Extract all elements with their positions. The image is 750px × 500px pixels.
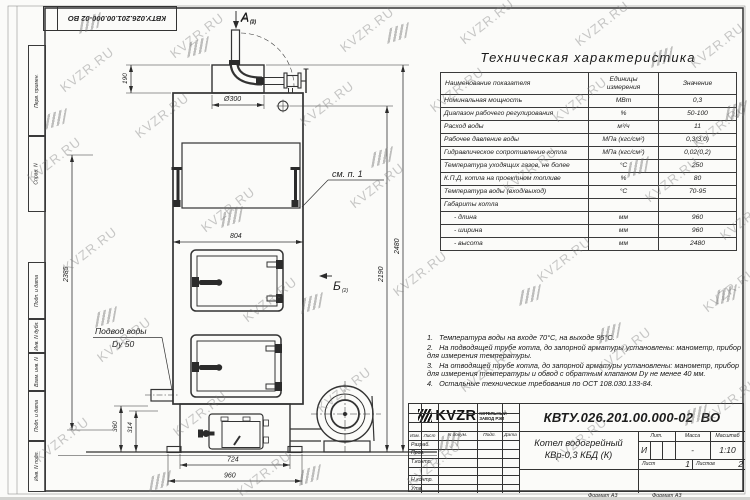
drawing-sheet: А (2) (0, 0, 750, 500)
spec-row: Диапазон рабочего регулирования%50-100 (441, 108, 737, 121)
spec-cell: 0,02(0,2) (659, 147, 737, 160)
frame-label-perv-primen: Перв. примен. (28, 45, 46, 137)
note-text: Температура воды на входе 70°С, на выход… (439, 333, 615, 342)
spec-row: Расход водым³/ч11 (441, 121, 737, 134)
note-text: На подводящей трубе котла, до запорной а… (427, 343, 741, 361)
spec-cell: Рабочее давление воды (441, 134, 589, 147)
product-name: Котел водогрейный КВр-0,3 КБД (К) (519, 431, 638, 469)
spec-cell: % (589, 108, 659, 121)
spec-cell: мм (589, 212, 659, 225)
spec-row: - высотамм2480 (441, 238, 737, 251)
spec-row: - ширинамм960 (441, 225, 737, 238)
spec-row: Температура воды (вход/выход)°С70-95 (441, 186, 737, 199)
top-stamp: КВТУ.026.201.00.000-02 ВО (43, 6, 177, 31)
note-text: Остальные технические требования по ОСТ … (439, 379, 653, 388)
spec-row: Габариты котла (441, 199, 737, 212)
row-razrab: Разраб. (411, 440, 439, 449)
technical-notes: 1.Температура воды на входе 70°С, на вых… (427, 334, 741, 389)
spec-col-name: Наименование показателя (441, 73, 589, 95)
col-podp: Подп. (477, 431, 502, 440)
spec-row: К.П.Д. котла на проектном топливе%80 (441, 173, 737, 186)
view-a-sub: (2) (250, 20, 256, 26)
title-block: КВТУ.026.201.00.000-02 ВО Изм. Лист N до… (408, 403, 744, 492)
frame-label-text: Инв. N подл. (34, 451, 40, 481)
spec-row: Гидравлическое сопротивление котлаМПа (к… (441, 147, 737, 160)
kvzr-logo: KVZR КОТЕЛЬНЫЙ ЗАВОД РЭП (409, 404, 516, 428)
stamp-number: КВТУ.026.201.00.000-02 ВО (68, 14, 166, 23)
spec-cell (659, 199, 737, 212)
col-data: Дата (502, 431, 519, 440)
view-a-letter: А (240, 11, 249, 25)
spec-cell: 960 (659, 225, 737, 238)
row-nkontr: Н.контр. (411, 475, 439, 484)
frame-label-podp-data-2: Подп. и дата (28, 390, 46, 442)
spec-cell: м³/ч (589, 121, 659, 134)
stamp-divider (44, 7, 58, 30)
spec-cell: 70-95 (659, 186, 737, 199)
spec-cell: мм (589, 238, 659, 251)
col-list: Лист (421, 431, 438, 440)
frame-label-text: Подп. и дата (34, 400, 40, 432)
spec-cell: Температура уходящих газов, не более (441, 160, 589, 173)
spec-row: - длинамм960 (441, 212, 737, 225)
product-name-line1: Котел водогрейный (534, 438, 622, 450)
spec-cell: - ширина (441, 225, 589, 238)
sheets-cell: Листов 2 (696, 459, 747, 469)
row-tkontr: Т.контр. (411, 458, 439, 467)
col-izm: Изм. (409, 431, 421, 440)
spec-title: Техническая характеристика (440, 50, 736, 65)
lit-header: Лит. (638, 431, 675, 441)
frame-label-podp-data-1: Подп. и дата (28, 262, 46, 320)
technical-note: 4.Остальные технические требования по ОС… (427, 380, 741, 389)
spec-cell: - длина (441, 212, 589, 225)
sheets-label: Листов (696, 461, 715, 467)
spec-cell: 11 (659, 121, 737, 134)
spec-cell: МВт (589, 95, 659, 108)
spec-cell: Температура воды (вход/выход) (441, 186, 589, 199)
spec-cell (589, 199, 659, 212)
technical-note: 3.На отводящей трубе котла, до запорной … (427, 362, 741, 379)
frame-label-inv-podl: Инв. N подл. (28, 440, 46, 492)
row-utv: Утв. (411, 484, 439, 493)
technical-note: 2.На подводящей трубе котла, до запорной… (427, 344, 741, 361)
spec-cell: Гидравлическое сопротивление котла (441, 147, 589, 160)
spec-cell: 50-100 (659, 108, 737, 121)
sheet-label: Лист (642, 461, 655, 467)
note-number: 1. (427, 333, 433, 342)
document-number: КВТУ.026.201.00.000-02 ВО (519, 404, 745, 431)
spec-cell: Габариты котла (441, 199, 589, 212)
note-text: На отводящей трубе котла, до запорной ар… (427, 361, 739, 379)
spec-cell: К.П.Д. котла на проектном топливе (441, 173, 589, 186)
spec-cell: Диапазон рабочего регулирования (441, 108, 589, 121)
spec-cell: Расход воды (441, 121, 589, 134)
note-number: 4. (427, 379, 433, 388)
spec-cell: МПа (кгс/см²) (589, 134, 659, 147)
spec-cell: % (589, 173, 659, 186)
frame-label-inv-dubl: Инв. N дубл. (28, 318, 46, 354)
lit-value: И (638, 441, 650, 459)
spec-cell: 0,3 (659, 95, 737, 108)
spec-cell: 2480 (659, 238, 737, 251)
spec-cell: 250 (659, 160, 737, 173)
spec-cell: 0,3(3,0) (659, 134, 737, 147)
spec-row: Температура уходящих газов, не более°С25… (441, 160, 737, 173)
spec-col-units: Единицы измерения (589, 73, 659, 95)
frame-label-vzam-inv: Взам. инв. N (28, 352, 46, 392)
spec-cell: МПа (кгс/см²) (589, 147, 659, 160)
technical-note: 1.Температура воды на входе 70°С, на вых… (427, 334, 741, 343)
spec-cell: °С (589, 160, 659, 173)
mass-header: Масса (675, 431, 710, 441)
spec-cell: 80 (659, 173, 737, 186)
spec-cell: мм (589, 225, 659, 238)
spec-table: Наименование показателя Единицы измерени… (440, 72, 737, 251)
sheet-cell: Лист 1 (642, 459, 696, 469)
frame-label-text: Инв. N дубл. (34, 321, 40, 351)
row-prov: Пров. (411, 449, 439, 458)
product-name-line2: КВр-0,3 КБД (К) (545, 450, 613, 462)
scale-value: 1:10 (710, 441, 745, 459)
mass-value: - (675, 441, 710, 459)
sheets-value: 2 (738, 459, 743, 469)
spec-cell: Номинальная мощность (441, 95, 589, 108)
scale-header: Масштаб (710, 431, 745, 441)
spec-section: Техническая характеристика Наименование … (440, 50, 736, 251)
spec-cell: - высота (441, 238, 589, 251)
frame-label-text: Подп. и дата (34, 275, 40, 307)
spec-row: Рабочее давление водыМПа (кгс/см²)0,3(3,… (441, 134, 737, 147)
spec-col-value: Значение (659, 73, 737, 95)
frame-label-text: Взам. инв. N (34, 357, 40, 387)
spec-header-row: Наименование показателя Единицы измерени… (441, 73, 737, 95)
frame-label-text: Справ. N (34, 163, 40, 184)
frame-label-text: Перв. примен. (34, 74, 40, 108)
spec-cell: °С (589, 186, 659, 199)
frame-label-sprav-n: Справ. N (28, 135, 46, 212)
spec-cell: 960 (659, 212, 737, 225)
sheet-value: 1 (685, 459, 690, 469)
spec-row: Номинальная мощностьМВт0,3 (441, 95, 737, 108)
col-ndok: N докум. (438, 431, 477, 440)
row-blank (411, 467, 439, 476)
